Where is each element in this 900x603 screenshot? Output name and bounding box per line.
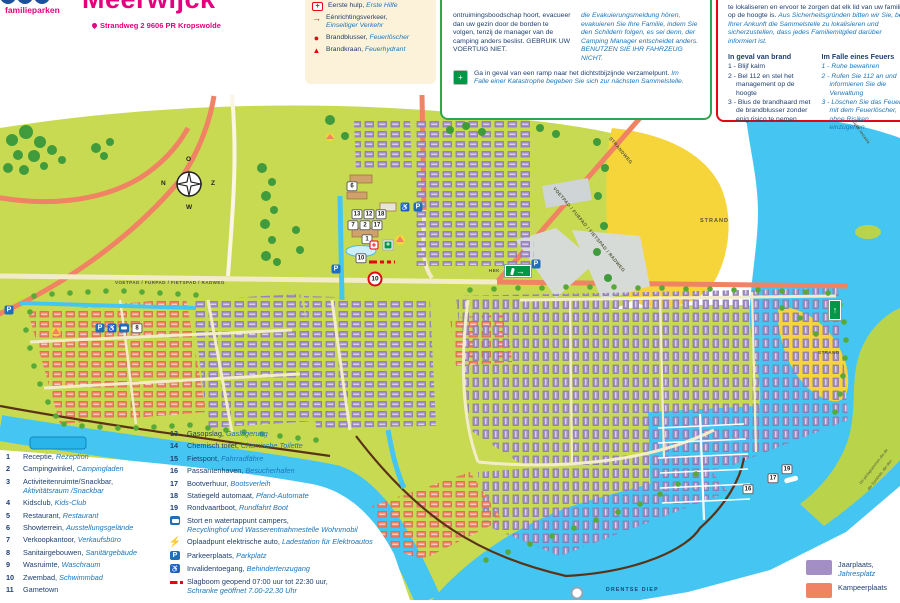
restaurant-building xyxy=(352,228,378,237)
legend-item-extinguisher: ● Brandblusser, Feuerlöscher xyxy=(312,34,431,43)
poi-item-18: 18Statiegeld automaat, Pfand-Automate xyxy=(170,491,440,500)
cluster-year-mid xyxy=(304,296,436,428)
poi-legend-left: 1Receptie, Rezeption 2Campingwinkel, Cam… xyxy=(6,452,168,597)
shop-building xyxy=(347,192,367,199)
area-type-legend: Jaarplaats,Jahresplatz Kampeerplaats xyxy=(806,560,887,603)
poi-item-10: 10Zwembad, Schwimmbad xyxy=(6,573,168,582)
fire-hydrant-icon: ▲ xyxy=(312,46,321,55)
poi-item-4: 4Kidsclub, Kids-Club xyxy=(6,498,168,507)
poi-item-16: 16Passantenhaven, Besucherhafen xyxy=(170,466,440,475)
kampeerplaats-swatch xyxy=(806,583,832,598)
fire-extinguisher-icon: ● xyxy=(312,34,321,43)
evacuation-text-de: die Evakuierungsmeldung hören, evakuiere… xyxy=(581,12,699,64)
jaarplaats-swatch xyxy=(806,560,832,575)
office-building xyxy=(380,203,396,211)
drentse-diep-label: DRENTSE DIEP xyxy=(606,587,659,593)
reception-building xyxy=(350,175,372,183)
area-legend-jaarplaats: Jaarplaats,Jahresplatz xyxy=(806,560,887,578)
legend-item-hydrant: ▲ Brandkraan, Feuerhydrant xyxy=(312,46,431,55)
poi-item-1: 1Receptie, Rezeption xyxy=(6,452,168,461)
swim-pond xyxy=(346,246,376,257)
poi-item-19: 19Rondvaartboot, Rundfahrt Boot xyxy=(170,503,440,512)
poi-item-7: 7Verkoopkantoor, Verkaufsbüro xyxy=(6,535,168,544)
evacuation-box: ontruimingsboodschap hoort, evacueer dan… xyxy=(440,0,712,120)
compass-left: N xyxy=(161,180,166,187)
fire-column-de: Im Falle eines Feuers 1 - Ruhe bewahren … xyxy=(822,53,900,134)
cluster-year-north xyxy=(414,118,534,266)
poi-item-11: 11Gametown xyxy=(6,585,168,594)
campsite-map-page: { "header": { "brand": "familieparken", … xyxy=(0,0,900,600)
compass-rose: O N Z W xyxy=(168,163,210,205)
canal-2 xyxy=(340,196,342,300)
page-title: Meerwijck xyxy=(82,0,216,15)
poi-item-parking: P Parkeerplaats, Parkplatz xyxy=(170,551,440,561)
ev-charger-icon: ⚡ xyxy=(170,538,180,547)
poi-item-14: 14Chemisch toilet, Chemische Toilette xyxy=(170,441,440,450)
one-way-icon: → xyxy=(312,14,321,23)
poi-item-6: 6Showterrein, Ausstellungsgelände xyxy=(6,523,168,532)
safety-legend-box: ♥ Defibrillator, Defibrilator + Eerste h… xyxy=(305,0,436,84)
wheelchair-icon: ♿ xyxy=(170,564,180,573)
poi-item-8: 8Sanitairgebouwen, Sanitärgebäude xyxy=(6,548,168,557)
strand-label-2: STRAND xyxy=(818,350,840,355)
cluster-camp-west xyxy=(28,298,206,424)
barrier-icon xyxy=(170,581,183,584)
parking-icon: P xyxy=(170,551,180,560)
poi-item-ev-charger: ⚡ Oplaadpunt elektrische auto, Ladestati… xyxy=(170,537,440,547)
voetpad-label: VOETPAD / FURPAD / FIETSPAD / RADWEG xyxy=(115,280,225,285)
poi-item-barrier: Slagboom geopend 07:00 uur tot 22:30 uur… xyxy=(170,577,440,595)
camper-service-icon xyxy=(170,516,180,525)
fire-title-de: Im Falle eines Feuers xyxy=(822,53,900,61)
poi-item-2: 2Campingwinkel, Campingladen xyxy=(6,464,168,473)
cluster-year-gate xyxy=(354,118,412,170)
poi-item-wheelchair: ♿ Invalidentoegang, Behindertenzugang xyxy=(170,564,440,574)
poi-item-15: 15Fietspont, Fahrradfähre xyxy=(170,454,440,463)
pool xyxy=(30,437,86,449)
fire-column-nl: In geval van brand 1 - Blijf kalm 2 - Be… xyxy=(728,53,813,134)
cluster-year-east xyxy=(456,288,848,470)
strand-label-1: STRAND xyxy=(700,218,729,224)
compass-top: O xyxy=(186,156,191,163)
poi-item-13: 13Gasopslag, Gaslagerung xyxy=(170,429,440,438)
evacuation-text-nl: ontruimingsboodschap hoort, evacueer dan… xyxy=(453,12,571,64)
poi-legend-middle: 13Gasopslag, Gaslagerung 14Chemisch toil… xyxy=(170,429,440,599)
park-address: Strandweg 2 9606 PR Kropswolde xyxy=(92,21,221,30)
poi-item-camper-service: Stort en watertappunt campers,Recyclingh… xyxy=(170,516,440,534)
location-pin-icon xyxy=(91,22,98,29)
poi-item-17: 17Bootverhuur, Bootsverleih xyxy=(170,479,440,488)
compass-bottom: W xyxy=(186,204,192,211)
hek-label: HEK xyxy=(489,268,500,273)
legend-item-first-aid: + Eerste hulp, Erste Hilfe xyxy=(312,2,431,11)
legend-item-one-way: → Eénrichtingsverkeer,Einseitiger Verkeh… xyxy=(312,14,431,30)
fire-instructions-box: te lokaliseren en ervoor te zorgen dat e… xyxy=(716,0,900,122)
fire-title-nl: In geval van brand xyxy=(728,53,813,61)
fire-intro: te lokaliseren en ervoor te zorgen dat e… xyxy=(728,4,900,46)
first-aid-icon: + xyxy=(312,2,323,11)
shallow-island xyxy=(855,225,881,239)
brand-name: familieparken xyxy=(5,5,60,15)
compass-right: Z xyxy=(211,180,215,187)
area-legend-kampeerplaats: Kampeerplaats xyxy=(806,583,887,598)
poi-item-5: 5Restaurant, Restaurant xyxy=(6,511,168,520)
assembly-point-icon: + xyxy=(453,70,468,85)
poi-item-9: 9Wasruimte, Waschraum xyxy=(6,560,168,569)
poi-item-3: 3Activiteitenruimte/Snackbar,Aktivitätsr… xyxy=(6,477,168,495)
